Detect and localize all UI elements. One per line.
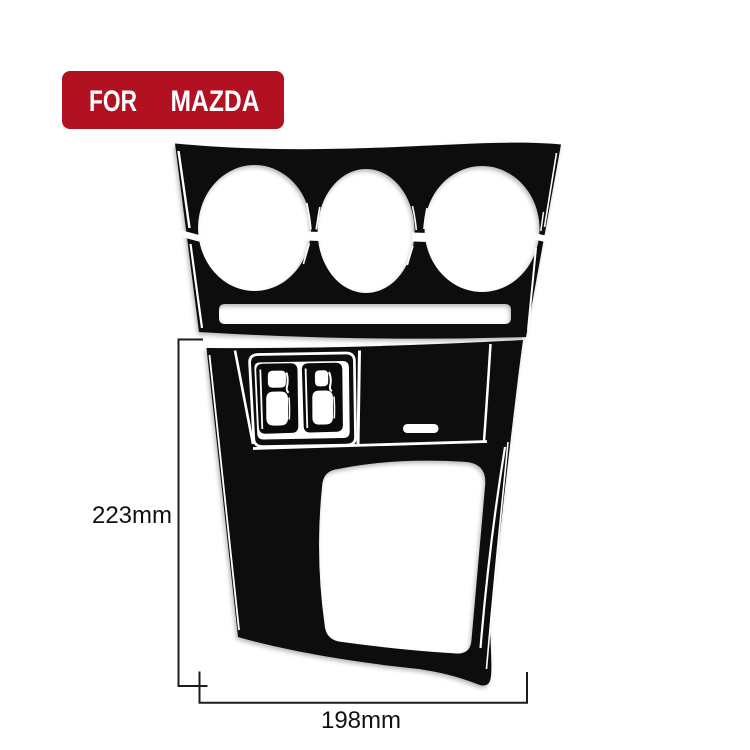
svg-text:MAZDA: MAZDA — [171, 85, 260, 118]
svg-text:223mm: 223mm — [92, 502, 172, 529]
svg-text:FOR: FOR — [89, 85, 137, 118]
svg-text:198mm: 198mm — [321, 707, 401, 734]
